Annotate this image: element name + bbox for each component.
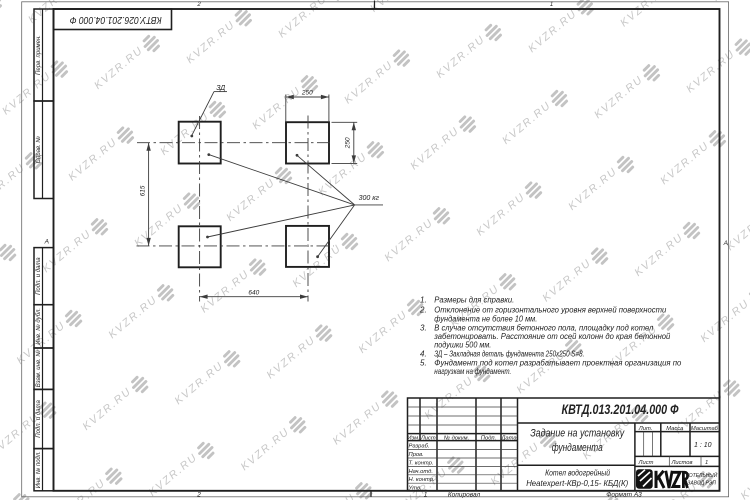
svg-text:Изм.: Изм.	[407, 435, 419, 441]
svg-text:KVZR.RU: KVZR.RU	[632, 231, 686, 279]
svg-text:KVZR.RU: KVZR.RU	[92, 44, 146, 92]
svg-text:Фундамент под котел разрабатыв: Фундамент под котел разрабатывает проект…	[434, 358, 682, 367]
svg-text:250: 250	[345, 137, 352, 149]
svg-text:KVZR.RU: KVZR.RU	[80, 385, 134, 433]
svg-text:Н. контр.: Н. контр.	[409, 477, 435, 483]
svg-text:Инв. № дубл.: Инв. № дубл.	[35, 308, 42, 345]
svg-text:ЗД – Закладная деталь фундамен: ЗД – Закладная деталь фундамента 250х250…	[434, 350, 584, 359]
svg-text:KVZR.RU: KVZR.RU	[316, 150, 370, 198]
svg-text:KVZR.RU: KVZR.RU	[106, 293, 160, 341]
svg-text:KVZR.RU: KVZR.RU	[368, 0, 422, 15]
svg-text:2.: 2.	[419, 306, 427, 315]
svg-text:Взам. инв. №: Взам. инв. №	[35, 350, 42, 388]
svg-text:4.: 4.	[420, 350, 427, 359]
svg-text:1: 1	[550, 2, 553, 8]
svg-text:300 кг: 300 кг	[359, 195, 380, 202]
svg-text:KVZR.RU: KVZR.RU	[592, 73, 646, 121]
svg-text:Подп. и дата: Подп. и дата	[36, 400, 42, 438]
svg-text:1 : 10: 1 : 10	[694, 442, 712, 449]
svg-text:Масштаб: Масштаб	[691, 426, 719, 432]
svg-text:Размеры для справки.: Размеры для справки.	[434, 296, 514, 305]
svg-text:KVZR.RU: KVZR.RU	[474, 191, 528, 239]
svg-text:Утв.: Утв.	[408, 485, 422, 491]
svg-text:615: 615	[140, 185, 147, 196]
svg-text:640: 640	[248, 290, 259, 297]
svg-text:KVZR.RU: KVZR.RU	[172, 359, 226, 407]
svg-text:KVZR.RU: KVZR.RU	[184, 18, 238, 66]
svg-text:KVZR.RU: KVZR.RU	[198, 268, 252, 316]
svg-text:KVZR.RU: KVZR.RU	[331, 400, 385, 448]
svg-text:KVZR.RU: KVZR.RU	[305, 491, 359, 500]
svg-text:Лист: Лист	[638, 460, 654, 466]
svg-text:KVZR.RU: KVZR.RU	[66, 136, 120, 184]
svg-text:KVZR.RU: KVZR.RU	[618, 0, 672, 29]
svg-text:фундамента: фундамента	[552, 442, 603, 454]
svg-text:ЗАВОД РЭП: ЗАВОД РЭП	[687, 481, 716, 487]
svg-text:КОТЕЛЬНЫЙ: КОТЕЛЬНЫЙ	[686, 471, 718, 479]
svg-text:KVZR.RU: KVZR.RU	[658, 139, 712, 187]
svg-text:KVZR.RU: KVZR.RU	[684, 48, 738, 96]
svg-text:Heatexpert-КВр-0,15- КБД(К): Heatexpert-КВр-0,15- КБД(К)	[526, 478, 628, 488]
svg-text:KVZR.RU: KVZR.RU	[724, 205, 750, 253]
svg-text:KVZR.RU: KVZR.RU	[250, 84, 304, 132]
svg-text:KVZR.RU: KVZR.RU	[408, 125, 462, 173]
svg-text:KVZR.RU: KVZR.RU	[566, 165, 620, 213]
svg-text:Т. контр.: Т. контр.	[409, 460, 434, 466]
svg-text:Копировал: Копировал	[448, 492, 481, 499]
svg-text:KVZR.RU: KVZR.RU	[264, 334, 318, 382]
svg-text:KVZR.RU: KVZR.RU	[500, 99, 554, 147]
svg-text:1: 1	[424, 492, 428, 499]
svg-text:KVZR.RU: KVZR.RU	[739, 455, 750, 500]
svg-text:1: 1	[705, 460, 708, 466]
svg-text:KVZR.RU: KVZR.RU	[698, 297, 750, 345]
svg-text:нагрузкам на фундамент.: нагрузкам на фундамент.	[434, 367, 511, 376]
svg-text:KVZR.RU: KVZR.RU	[526, 7, 580, 55]
svg-text:KVZR.RU: KVZR.RU	[342, 59, 396, 107]
svg-text:Лист: Лист	[420, 435, 436, 441]
svg-text:подушки 500 мм.: подушки 500 мм.	[434, 341, 491, 350]
svg-text:KVZR.RU: KVZR.RU	[40, 227, 94, 275]
svg-text:2: 2	[196, 492, 201, 499]
svg-text:KVZR.RU: KVZR.RU	[434, 33, 488, 81]
svg-text:В случае отсутствия бетонного: В случае отсутствия бетонного пола, площ…	[434, 323, 653, 332]
svg-text:Подп.: Подп.	[481, 435, 496, 441]
svg-text:KVZR.RU: KVZR.RU	[239, 425, 293, 473]
svg-text:KVZR.RU: KVZR.RU	[540, 257, 594, 305]
svg-text:Задание на установку: Задание на установку	[530, 428, 625, 440]
svg-text:А: А	[723, 240, 728, 247]
svg-text:КВТД.013.201.04.000 Ф: КВТД.013.201.04.000 Ф	[562, 402, 679, 417]
svg-text:Масса: Масса	[666, 426, 684, 432]
svg-text:KVZR.RU: KVZR.RU	[276, 0, 330, 40]
svg-text:1.: 1.	[420, 296, 427, 305]
svg-text:KVZR.RU: KVZR.RU	[0, 253, 2, 301]
svg-text:Дата: Дата	[500, 435, 517, 441]
svg-text:5.: 5.	[420, 358, 427, 367]
svg-text:Справ. №: Справ. №	[35, 136, 42, 164]
svg-text:250: 250	[301, 90, 313, 97]
svg-text:Котел водогрейный: Котел водогрейный	[545, 468, 610, 478]
svg-text:Листов: Листов	[670, 460, 692, 466]
svg-text:3.: 3.	[420, 323, 427, 332]
svg-text:KVZR.RU: KVZR.RU	[0, 70, 54, 118]
svg-text:KVZR.RU: KVZR.RU	[224, 176, 278, 224]
svg-text:KVZR.RU: KVZR.RU	[356, 308, 410, 356]
svg-text:Пров.: Пров.	[409, 452, 424, 458]
svg-text:KVZR.RU: KVZR.RU	[0, 161, 28, 209]
svg-text:Разраб.: Разраб.	[409, 444, 430, 450]
svg-text:КВТУ.026.201.04.000 Ф: КВТУ.026.201.04.000 Ф	[70, 14, 162, 25]
svg-text:фундамента не более 10 мм.: фундамента не более 10 мм.	[434, 314, 537, 323]
svg-text:KVZR.RU: KVZR.RU	[158, 110, 212, 158]
svg-text:Инв. № подл.: Инв. № подл.	[35, 451, 42, 488]
svg-text:2: 2	[196, 2, 201, 8]
svg-text:ЗД: ЗД	[216, 85, 225, 92]
svg-text:А: А	[44, 239, 49, 246]
svg-text:Нач.отд.: Нач.отд.	[409, 469, 433, 475]
svg-text:Формат А3: Формат А3	[606, 492, 642, 499]
svg-text:Лит.: Лит.	[638, 426, 653, 432]
svg-text:KVZR.RU: KVZR.RU	[382, 216, 436, 264]
svg-text:Отклонение от горизонтального: Отклонение от горизонтального уровня вер…	[434, 306, 667, 315]
svg-text:Подп. и дата: Подп. и дата	[36, 257, 42, 295]
svg-text:Перв. примен.: Перв. примен.	[36, 35, 42, 75]
svg-text:№ докум.: № докум.	[444, 435, 470, 441]
